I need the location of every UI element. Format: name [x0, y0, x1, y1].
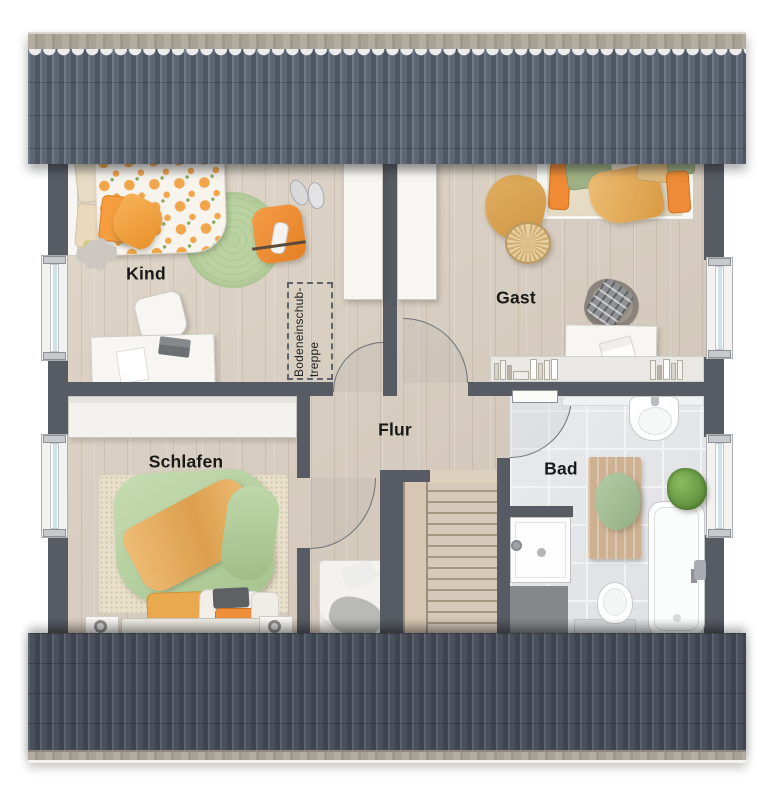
- roof-bottom-ridge: [28, 750, 746, 763]
- roof-top-scallops: [28, 49, 746, 58]
- wall-schlafen-flur-upper: [297, 394, 310, 478]
- window-cap: [43, 529, 66, 537]
- book: [500, 360, 506, 380]
- room-label-flur: Flur: [378, 420, 412, 441]
- exterior-wall-right: [704, 357, 724, 437]
- bathtub-inner: [654, 507, 699, 631]
- window-cap: [708, 350, 731, 358]
- book: [494, 363, 499, 380]
- roof-bottom: [28, 633, 746, 763]
- folded-clothes: [213, 587, 250, 609]
- bathtub: [648, 501, 705, 637]
- attic-ladder-label: treppe: [307, 342, 321, 377]
- shower: [510, 517, 571, 583]
- window: [41, 255, 68, 361]
- woven-basket: [505, 222, 551, 264]
- book: [530, 359, 537, 380]
- bad-door-leaf: [512, 390, 558, 403]
- book: [544, 360, 550, 380]
- wall-stairwell: [497, 458, 510, 635]
- stair-banister: [403, 482, 428, 634]
- staircase: [428, 470, 497, 635]
- window-cap: [708, 258, 731, 266]
- window: [706, 257, 733, 359]
- wall-stairs-left: [380, 470, 403, 635]
- wall-gast-bad: [468, 382, 704, 396]
- window-cap: [43, 435, 66, 443]
- schlafen-wardrobe: [68, 396, 297, 438]
- room-label-kind: Kind: [126, 264, 166, 285]
- roof-shadow-bottom: [48, 618, 724, 633]
- room-label-bad: Bad: [544, 459, 578, 480]
- book-row: [494, 358, 559, 380]
- book: [538, 363, 543, 380]
- book-row: [650, 358, 684, 380]
- book: [551, 359, 558, 380]
- kind-desk: [90, 333, 215, 386]
- room-label-gast: Gast: [496, 288, 536, 309]
- cloud-side-table: [84, 240, 106, 262]
- window-glass: [53, 265, 57, 351]
- book: [671, 363, 676, 380]
- book: [507, 365, 512, 380]
- plant: [667, 468, 707, 510]
- exterior-wall-left: [48, 358, 68, 436]
- room-label-schlafen: Schlafen: [149, 452, 224, 473]
- faucet-icon: [694, 560, 706, 580]
- sink-tap: [651, 397, 659, 406]
- book: [657, 365, 662, 380]
- window-glass: [718, 267, 722, 349]
- book: [663, 359, 670, 380]
- kind-desk-paper: [116, 347, 150, 384]
- window-cap: [43, 256, 66, 264]
- roof-top-tiles: [28, 49, 746, 164]
- sink: [629, 396, 679, 441]
- book: [650, 360, 656, 380]
- toilet-seat: [603, 588, 627, 616]
- window-cap: [43, 352, 66, 360]
- shower-drain: [537, 548, 546, 557]
- window: [41, 434, 68, 538]
- window-glass: [53, 444, 57, 528]
- wall-stairs-top-stub: [400, 470, 430, 482]
- wall-shower-stub: [497, 506, 573, 517]
- roof-bottom-tiles: [28, 633, 746, 750]
- laptop: [158, 336, 191, 358]
- window-cap: [708, 529, 731, 537]
- book: [677, 360, 683, 380]
- showerhead-icon: [511, 540, 522, 551]
- window-glass: [718, 444, 722, 528]
- roof-top-ridge: [28, 34, 746, 50]
- floorplan-canvas: Bodeneinschub- treppe Kind Gast Schlafen…: [0, 0, 775, 796]
- roof-top: [28, 32, 746, 164]
- window-cap: [708, 435, 731, 443]
- sink-basin: [638, 407, 672, 435]
- wall-kind-schlafen: [58, 382, 333, 396]
- book: [513, 371, 529, 380]
- wall-kind-gast: [383, 148, 397, 396]
- gast-pillow-orange: [666, 170, 692, 214]
- window: [706, 434, 733, 538]
- attic-ladder-label: Bodeneinschub-: [292, 287, 306, 377]
